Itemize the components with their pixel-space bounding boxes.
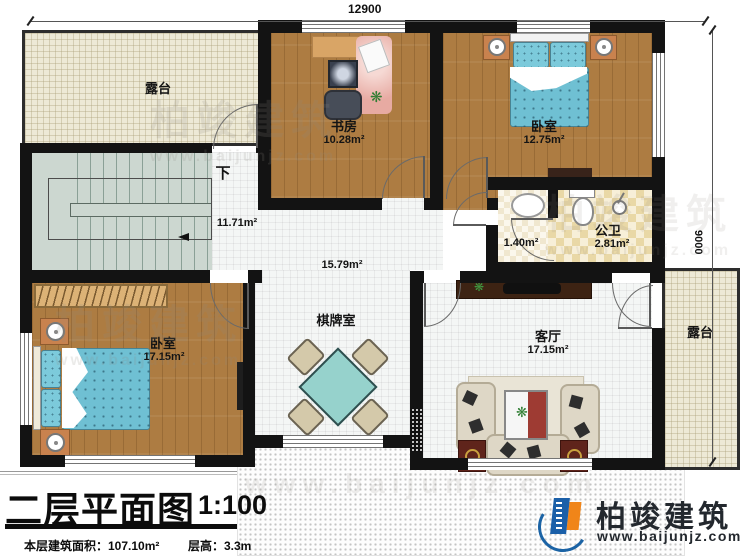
wall [548, 190, 558, 218]
tv [503, 283, 561, 294]
wall [652, 328, 665, 470]
dimension-top: 12900 [348, 2, 381, 16]
window [652, 53, 665, 157]
wall [20, 270, 210, 283]
wall [271, 198, 382, 210]
sink [511, 193, 545, 218]
room-area-bedroom-tr: 12.75m² [524, 135, 565, 146]
office-chair [324, 90, 362, 120]
room-area-bath: 2.81m² [595, 239, 630, 250]
wall [383, 435, 410, 448]
stairs-area-label: 11.71m² [217, 218, 257, 229]
room-label-living: 客厅 [535, 330, 561, 343]
computer-monitor [328, 60, 358, 88]
pillow [41, 350, 61, 388]
room-label-terrace-tl: 露台 [145, 82, 171, 95]
wall [256, 143, 271, 153]
wall [430, 33, 443, 210]
title-block-line [0, 471, 237, 472]
stairs-direction-label: 下 [215, 166, 230, 181]
lamp [46, 322, 65, 341]
window [283, 435, 383, 448]
door-leaf [256, 104, 258, 148]
shower-head [612, 200, 627, 215]
terrace-right-parapet [662, 268, 740, 470]
pillow [41, 389, 61, 427]
pillow [550, 42, 586, 68]
pillow [513, 42, 549, 68]
dimension-line-right [712, 30, 713, 462]
wall [487, 198, 498, 210]
door-leaf [247, 283, 249, 328]
lamp [595, 38, 613, 56]
wardrobe [34, 284, 168, 308]
room-area-living: 17.15m² [528, 345, 569, 356]
wall [410, 458, 468, 470]
plan-floor-height-text: 层高：3.3m [188, 537, 251, 554]
door-leaf [453, 224, 486, 226]
wall [20, 455, 65, 467]
door-leaf [423, 156, 425, 198]
room-area-study: 10.28m² [324, 135, 365, 146]
wall [424, 198, 430, 210]
room-label-bedroom-bl: 卧室 [150, 337, 176, 350]
door-leaf [618, 327, 652, 329]
wall [195, 455, 255, 467]
room-area-wash: 1.40m² [504, 238, 539, 249]
dimension-right: 9000 [692, 230, 704, 254]
hall-area-label: 15.79m² [322, 260, 363, 271]
wall [486, 225, 498, 262]
dimension-tick [702, 16, 710, 26]
door-leaf [424, 283, 426, 326]
shelf [548, 168, 592, 177]
room-label-bath: 公卫 [595, 224, 621, 237]
lamp [488, 38, 506, 56]
wall-vent-grille [411, 408, 422, 452]
wall [498, 177, 652, 190]
title-block-line [0, 474, 237, 475]
door-leaf [511, 218, 553, 220]
wall [650, 271, 665, 283]
window [65, 455, 195, 467]
stair-direction-arrow [178, 233, 189, 241]
potted-plant: ❋ [370, 88, 383, 106]
bed-headboard [510, 33, 589, 42]
floor-plan: ❋ ❋ ❋ 露台 下 11.71m² 书 [0, 0, 750, 560]
wall [460, 271, 612, 283]
plan-scale: 1:100 [198, 490, 267, 521]
dimension-line-top [30, 21, 706, 22]
title-underline [5, 524, 237, 529]
room-area-bedroom-bl: 17.15m² [144, 352, 185, 363]
toilet-bowl [572, 197, 594, 226]
study-desk [312, 36, 362, 58]
wall [258, 33, 271, 210]
wall [20, 143, 32, 270]
room-label-game: 棋牌室 [316, 314, 355, 327]
room-label-bedroom-tr: 卧室 [531, 120, 557, 133]
table-plant: ❋ [516, 404, 528, 421]
brand-logo-windows [556, 502, 562, 530]
wall [248, 270, 262, 283]
wall [410, 271, 424, 283]
lamp [46, 433, 65, 452]
room-label-terrace-r: 露台 [687, 326, 713, 339]
window [20, 333, 32, 425]
stair-path-line [48, 178, 212, 240]
wall [243, 435, 283, 448]
room-label-study: 书房 [331, 120, 357, 133]
window [468, 458, 592, 470]
brand-url: www.baijunjz.com [597, 528, 742, 544]
wall [20, 143, 212, 153]
bed-headboard [33, 346, 41, 430]
plan-area-text: 本层建筑面积：107.10m² [24, 537, 159, 554]
